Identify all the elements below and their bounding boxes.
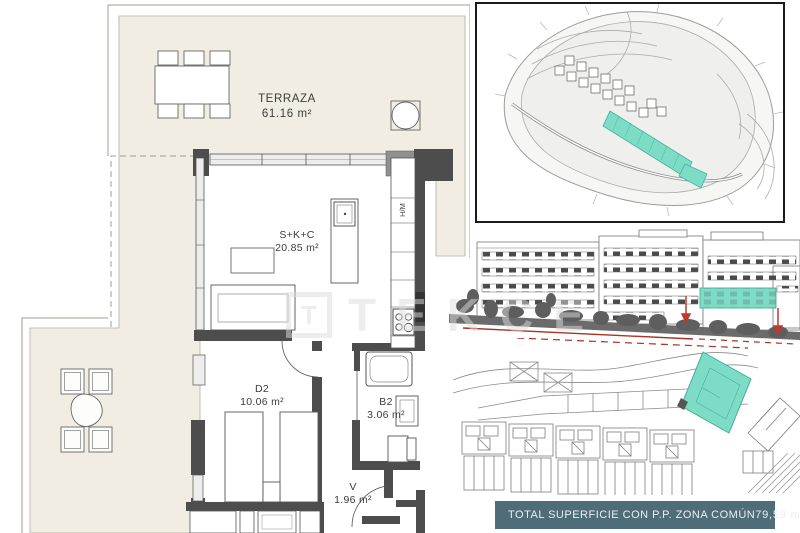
room-label-b2: B2 3.06 m² [336, 396, 436, 422]
summary-label: TOTAL SUPERFICIE CON P.P. ZONA COMÚN [508, 509, 755, 521]
window-band-top [210, 154, 416, 165]
summary-value: 79,59 m² [755, 509, 800, 521]
room-label-v: V 1.96 m² [303, 481, 403, 507]
site-plan-panel [475, 2, 785, 223]
floor-plan-drawing [0, 0, 470, 533]
nightstand [263, 482, 280, 502]
dining-table [155, 51, 230, 118]
room-label-terraza: TERRAZA 61.16 m² [227, 92, 347, 122]
bathtub [366, 352, 412, 386]
sofa [211, 285, 295, 330]
site-plan-drawing [477, 4, 783, 221]
washer-label: H/M [395, 191, 411, 229]
block-highlighted-unit [677, 352, 751, 433]
unit-row [462, 398, 800, 495]
room-label-d2: D2 10.06 m² [212, 383, 312, 409]
elevation-drawing [443, 226, 800, 346]
floorplan-sheet: TERRAZA 61.16 m² S+K+C 20.85 m² D2 10.06… [0, 0, 800, 533]
stove [393, 309, 414, 335]
summary-bar: TOTAL SUPERFICIE CON P.P. ZONA COMÚN 79,… [495, 501, 775, 529]
block-plan-drawing [448, 338, 800, 495]
room-label-skc: S+K+C 20.85 m² [247, 229, 347, 255]
wardrobe [190, 511, 320, 533]
elevation-highlighted-floor [700, 288, 776, 308]
toilet [388, 436, 416, 462]
